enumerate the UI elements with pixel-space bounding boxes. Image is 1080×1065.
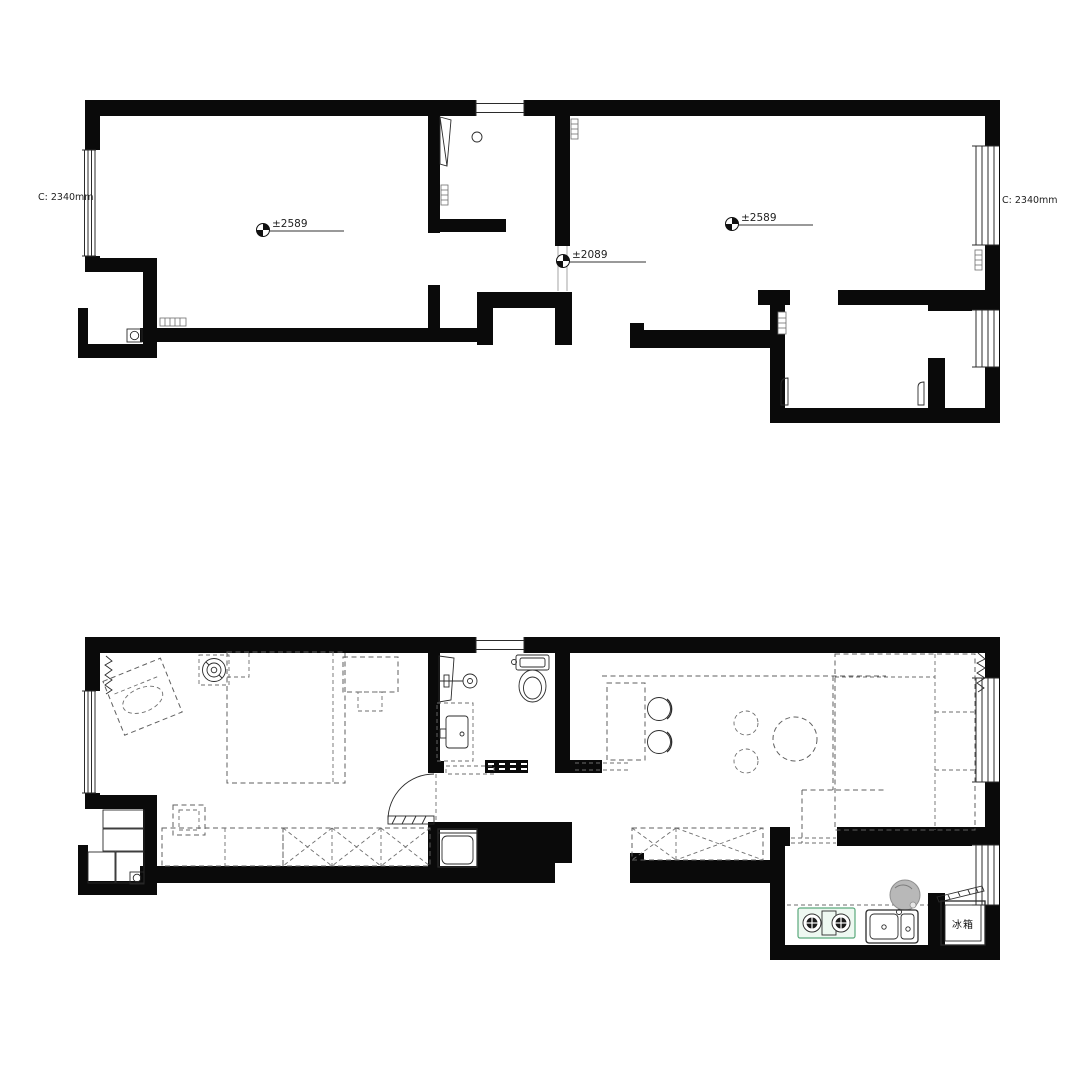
low-cabinet: [162, 828, 283, 866]
kitchen-cabinet-x: [632, 828, 763, 860]
sofa: [835, 654, 975, 830]
stove: [798, 908, 855, 938]
lower-plan: 冰箱: [78, 637, 1000, 960]
armchair: [103, 658, 182, 735]
level-marker-right-room: ±2589: [726, 212, 814, 231]
dining-chair-1: [648, 698, 672, 721]
level-label-left: ±2589: [272, 218, 308, 230]
window-top-2: [476, 637, 524, 653]
laundry-alcove: [88, 810, 144, 884]
level-label-right: ±2589: [741, 212, 777, 224]
shower: [439, 656, 477, 702]
window-right-living: [972, 678, 999, 782]
window-right-upper: [972, 146, 999, 245]
ceiling-fan: [199, 655, 229, 685]
water-heater: [890, 880, 920, 910]
ceiling-light: [472, 132, 482, 142]
socket-4: [778, 312, 786, 334]
upper-plan: ±2589 ±2089 ±2589 C: 2340mm C: 2340mm: [38, 100, 1058, 423]
upper-labels: ±2589 ±2089 ±2589 C: 2340mm C: 2340mm: [38, 192, 1058, 268]
dining-chair-2: [648, 731, 672, 754]
round-table: [773, 717, 817, 761]
dashed-chair-1: [734, 711, 758, 735]
ceiling-height-label-right: C: 2340mm: [1002, 195, 1058, 206]
kitchen-door-dashes: [791, 838, 836, 843]
vanity: [437, 703, 473, 761]
bedroom-door: [388, 774, 436, 824]
sink: [866, 910, 918, 944]
window-left-2: [82, 691, 96, 793]
window-right-kitchen: [972, 845, 999, 905]
level-label-hall: ±2089: [572, 249, 608, 261]
upper-windows: [82, 100, 999, 367]
ceiling-height-label-left: C: 2340mm: [38, 192, 94, 203]
bed: [227, 652, 345, 783]
window-left: [82, 150, 96, 256]
washing-machine: [438, 829, 477, 867]
fridge-label: 冰箱: [952, 918, 974, 931]
socket-2: [571, 119, 578, 139]
floorplan-canvas: ±2589 ±2089 ±2589 C: 2340mm C: 2340mm: [0, 0, 1080, 1065]
bath-door-panel: [440, 117, 451, 166]
floor-plan-sheet: ±2589 ±2089 ±2589 C: 2340mm C: 2340mm: [0, 0, 1080, 1065]
level-marker-left-room: ±2589: [257, 218, 345, 237]
stool: [173, 805, 205, 835]
bedroom-furniture: [103, 652, 477, 867]
socket-3: [975, 250, 982, 270]
desk: [343, 657, 398, 711]
sideboard: [607, 683, 645, 760]
floor-drain: [127, 329, 142, 342]
window-top: [476, 100, 524, 116]
socket-1: [441, 185, 448, 205]
living-dining: [602, 653, 985, 843]
window-right-lower: [972, 310, 999, 367]
socket-strip: [160, 318, 186, 326]
bathroom-fixtures: [437, 655, 628, 774]
hall-door-jambs: [558, 246, 567, 291]
toilet: [512, 655, 550, 702]
dashed-chair-2: [734, 749, 758, 773]
upper-fixtures: [127, 117, 982, 405]
upper-walls: [78, 100, 1000, 423]
door-leaf-2: [918, 382, 924, 405]
wardrobe-x: [283, 828, 430, 866]
level-marker-hall: ±2089: [557, 249, 647, 268]
